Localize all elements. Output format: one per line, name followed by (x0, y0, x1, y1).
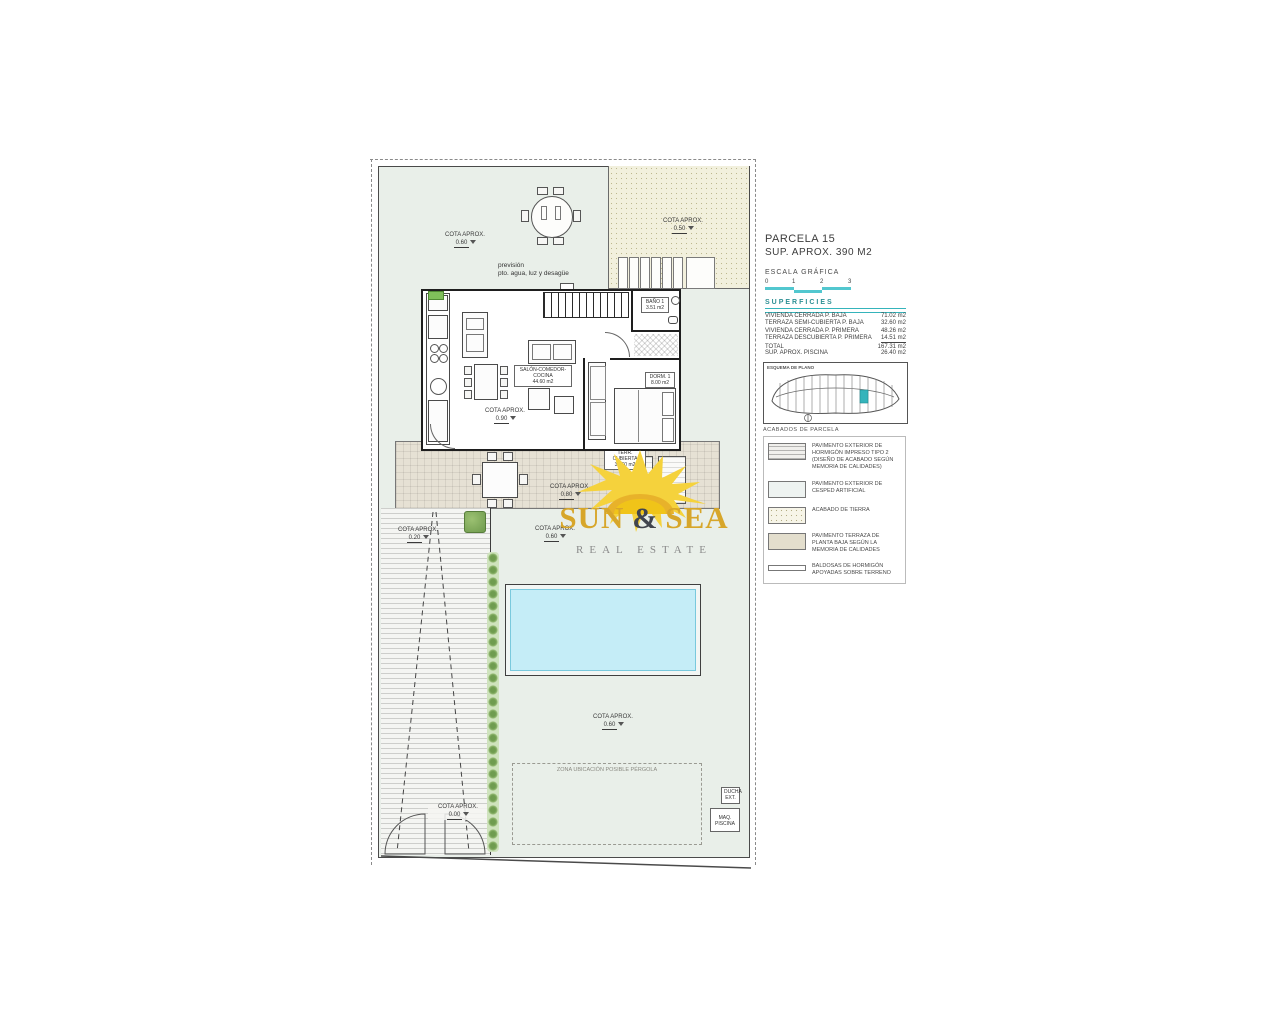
table-setting (555, 206, 561, 220)
toilet-icon (668, 316, 678, 324)
level-marker-icon (618, 722, 624, 726)
garden-chair (537, 187, 548, 195)
dining-chair (464, 390, 472, 399)
dining-chair (500, 390, 508, 399)
level-marker-icon (423, 535, 429, 539)
island-sink (466, 318, 484, 330)
sofa-cushion (532, 344, 551, 360)
boiler-marker (428, 291, 444, 300)
pillow (662, 392, 674, 416)
cota-house: COTA APROX. 0.90 (470, 408, 540, 424)
planter-slat (662, 257, 672, 289)
garden-chair (553, 237, 564, 245)
outdoor-chair (503, 452, 513, 461)
bedroom-label: DORM. 1 8.00 m2 (645, 372, 675, 388)
graphic-scale-bar: 0 1 2 3 (765, 279, 855, 293)
garden-chair (521, 210, 529, 222)
pillow (662, 418, 674, 442)
swatch-tierra (768, 507, 806, 524)
swatch-cesped-artificial (768, 481, 806, 498)
brand-wordmark: SUN & SEA (556, 500, 732, 536)
wardrobe-door (590, 366, 606, 400)
sofa-cushion (553, 344, 572, 360)
wall-bathroom (631, 330, 679, 332)
wall-bedroom (583, 358, 585, 449)
table-row: VIVIENDA CERRADA P. PRIMERA 48.26 m2 (765, 328, 906, 334)
scale-title: ESCALA GRÁFICA (765, 269, 839, 276)
swatch-terraza (768, 533, 806, 550)
cota-garden-bottom: COTA APROX. 0.60 (580, 714, 646, 730)
blanket-line (638, 390, 639, 442)
legend-box: PAVIMENTO EXTERIOR DE HORMIGÓN IMPRESO T… (763, 436, 906, 584)
pool-water (510, 589, 696, 671)
planter-slat (640, 257, 650, 289)
outdoor-chair (487, 499, 497, 508)
boundary-dashed-top (370, 159, 756, 160)
cota-tierra: COTA APROX. 0.50 (648, 218, 718, 234)
utilities-note: previsión pto. agua, luz y desagüe (498, 262, 569, 279)
level-marker-icon (470, 240, 476, 244)
pool-machinery-box: MAQ. PISCINA (710, 808, 740, 832)
superficies-title: SUPERFICIES (765, 299, 834, 306)
outdoor-chair (503, 499, 513, 508)
parcel-title: PARCELA 15 (765, 233, 835, 245)
pool-area-row: SUP. APROX. PISCINA 26.40 m2 (765, 350, 906, 356)
legend-item: PAVIMENTO EXTERIOR DE CESPED ARTIFICIAL (768, 481, 901, 498)
table-setting (541, 206, 547, 220)
floor-plan-sheet: previsión pto. agua, luz y desagüe TERR.… (0, 0, 1280, 1024)
planter-slat (673, 257, 683, 289)
cota-driveway: COTA APROX. 0.20 (385, 527, 451, 543)
planter-slat (629, 257, 639, 289)
hedge-row (487, 552, 499, 852)
island-hob (466, 334, 484, 352)
dining-chair (500, 366, 508, 375)
legend-item: ACABADO DE TIERRA (768, 507, 901, 524)
dining-chair (464, 378, 472, 387)
garden-chair (553, 187, 564, 195)
swatch-baldosas (768, 565, 806, 571)
living-room-label: SALÓN-COMEDOR-COCINA 44.60 m2 (514, 365, 572, 387)
boundary-dashed-right (755, 159, 756, 865)
wall-bedroom (610, 358, 679, 360)
pergola-label: ZONA UBICACIÓN POSIBLE PÉRGOLA (513, 767, 701, 773)
swatch-hormigon-impreso (768, 443, 806, 460)
hob-burner-icon (430, 354, 439, 363)
kitchen-sink-icon (430, 378, 447, 395)
dining-table (474, 364, 498, 400)
superficies-table: VIVIENDA CERRADA P. BAJA 71.02 m2 TERRAZ… (765, 313, 906, 350)
side-table (554, 396, 574, 414)
pergola-zone: ZONA UBICACIÓN POSIBLE PÉRGOLA (512, 763, 702, 845)
round-garden-table (531, 196, 573, 238)
kitchen-cabinet (428, 315, 448, 339)
level-marker-icon (510, 416, 516, 420)
hall-tiled-floor (634, 334, 678, 356)
hob-burner-icon (439, 354, 448, 363)
garden-chair (573, 210, 581, 222)
legend-item: PAVIMENTO TERRAZA DE PLANTA BAJA SEGÚN L… (768, 533, 901, 554)
legend-item: PAVIMENTO EXTERIOR DE HORMIGÓN IMPRESO T… (768, 443, 901, 472)
dining-chair (500, 378, 508, 387)
table-row: VIVIENDA CERRADA P. BAJA 71.02 m2 (765, 313, 906, 319)
wall-bathroom (631, 291, 633, 332)
pool (505, 584, 701, 676)
cota-garden-top: COTA APROX. 0.60 (430, 232, 500, 248)
table-row: TERRAZA DESCUBIERTA P. PRIMERA 14.51 m2 (765, 335, 906, 342)
coffee-table (528, 388, 550, 410)
legend-item: BALDOSAS DE HORMIGÓN APOYADAS SOBRE TERR… (768, 563, 901, 577)
keyplan-map-svg (764, 363, 907, 423)
outdoor-dining-table (482, 462, 518, 498)
cota-entrance: COTA APROX. 0.00 (428, 804, 488, 820)
sink-icon (671, 296, 680, 305)
garden-chair (537, 237, 548, 245)
outdoor-chair (487, 452, 497, 461)
scale-segment (765, 287, 794, 290)
table-row: TERRAZA SEMI-CUBIERTA P. BAJA 32.60 m2 (765, 320, 906, 326)
legend-title: ACABADOS DE PARCELA (763, 427, 839, 433)
keyplan-box: ESQUEMA DE PLANO (763, 362, 908, 424)
planter-slat (651, 257, 661, 289)
outdoor-chair (519, 474, 528, 485)
hob-burner-icon (430, 344, 439, 353)
keyplan-highlighted-parcel (860, 390, 868, 403)
parcel-subtitle: SUP. APROX. 390 M2 (765, 247, 872, 258)
outdoor-chair (472, 474, 481, 485)
outdoor-shower-box: DUCHA EXT. (721, 787, 740, 804)
wardrobe-door (590, 402, 606, 436)
level-marker-icon (463, 812, 469, 816)
brand-subtitle: REAL ESTATE (556, 544, 732, 556)
scale-segment (822, 287, 851, 290)
bathroom-label: BAÑO 1 3.51 m2 (641, 297, 669, 313)
planter-slat (618, 257, 628, 289)
bush (464, 511, 486, 533)
planter-box (686, 257, 715, 289)
stairs (543, 292, 629, 318)
keyplan-title: ESQUEMA DE PLANO (767, 365, 814, 370)
dining-chair (464, 366, 472, 375)
scale-segment (794, 290, 822, 293)
hob-burner-icon (439, 344, 448, 353)
level-marker-icon (688, 226, 694, 230)
boundary-dashed-left (371, 159, 372, 865)
